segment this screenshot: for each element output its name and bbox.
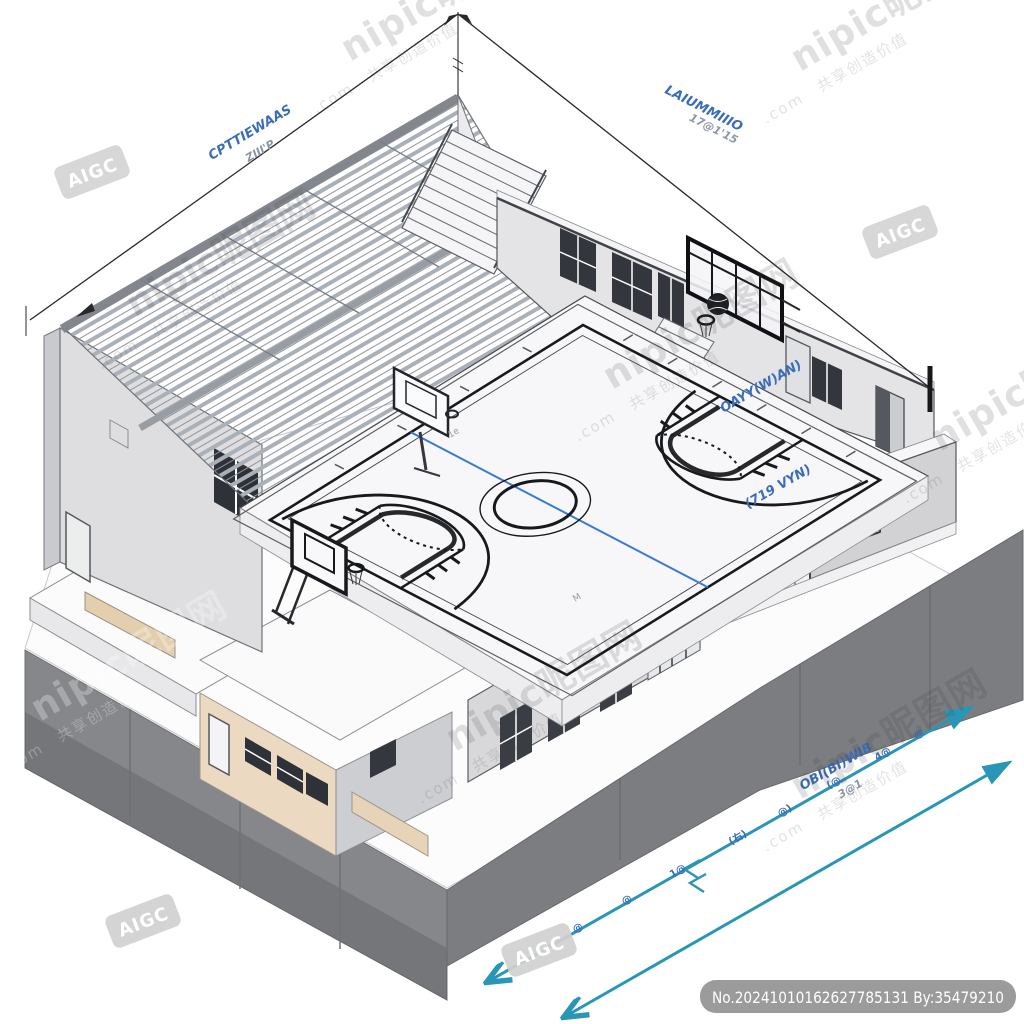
watermark: nipic昵图网 .com 共享创造价值 — [735, 0, 1005, 127]
stock-image-preview: CPTTIEWAAS ZIII'P LAIUMMIIIO 17@1'15 OAY… — [0, 0, 1024, 1024]
image-id-badge: No.20241010162627785131 By:35479210 — [700, 980, 1016, 1013]
aigc-badge: AIGC — [52, 143, 131, 201]
aigc-badge: AIGC — [860, 203, 939, 261]
dimension-label-top-right: LAIUMMIIIO 17@1'15 — [662, 83, 745, 147]
svg-text:.com: .com — [309, 79, 357, 117]
svg-text:.com: .com — [759, 89, 807, 127]
svg-text:1@: 1@ — [668, 863, 688, 881]
annex-door — [209, 714, 229, 775]
isometric-gym-illustration: CPTTIEWAAS ZIII'P LAIUMMIIIO 17@1'15 OAY… — [0, 0, 1024, 1024]
aigc-badge: AIGC — [103, 892, 182, 950]
svg-text:No.20241010162627785131 By:354: No.20241010162627785131 By:35479210 — [712, 988, 1004, 1007]
dimension-label-top-left: CPTTIEWAAS ZIII'P — [206, 102, 294, 165]
